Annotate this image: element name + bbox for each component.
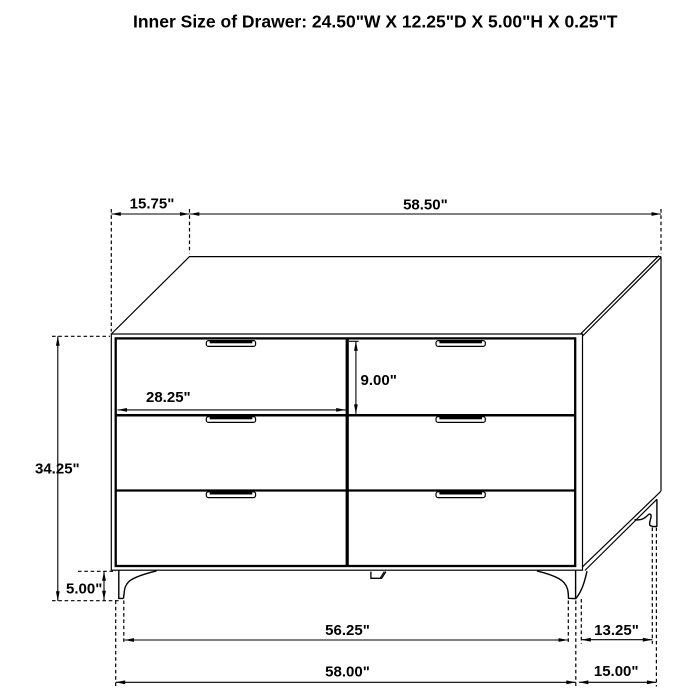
svg-text:5.00": 5.00" bbox=[66, 581, 102, 598]
svg-text:56.25": 56.25" bbox=[325, 622, 370, 639]
svg-text:15.00": 15.00" bbox=[594, 663, 639, 680]
svg-text:9.00": 9.00" bbox=[361, 372, 397, 389]
svg-text:28.25": 28.25" bbox=[146, 389, 191, 406]
svg-text:Inner Size of Drawer: 24.50"W: Inner Size of Drawer: 24.50"W X 12.25"D … bbox=[133, 12, 618, 32]
svg-text:13.25": 13.25" bbox=[594, 622, 639, 639]
svg-text:34.25": 34.25" bbox=[35, 461, 80, 478]
svg-text:58.00": 58.00" bbox=[325, 664, 370, 681]
svg-text:15.75": 15.75" bbox=[130, 196, 175, 213]
svg-text:58.50": 58.50" bbox=[403, 197, 448, 214]
